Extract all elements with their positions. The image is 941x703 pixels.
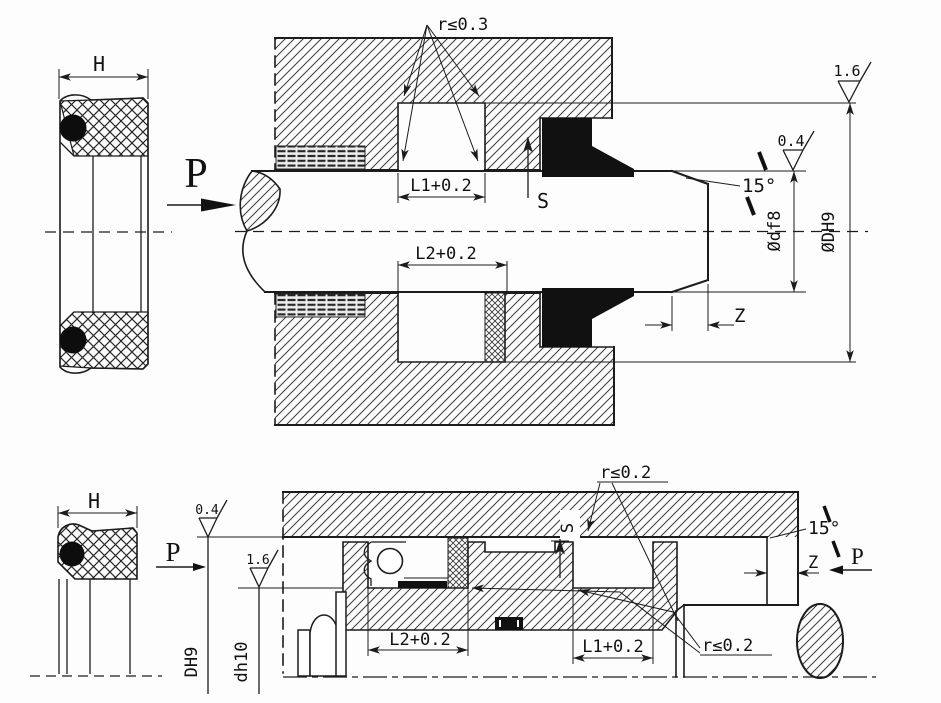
- label-l2-bottom: L2+0.2: [389, 630, 450, 650]
- piston-seal-figure: H P 0.4 DH9 1.6 dh10: [30, 463, 876, 694]
- label-z-bottom: Z: [808, 553, 818, 573]
- label-h-top: H: [93, 52, 105, 76]
- label-p-bottom-right: P: [851, 544, 864, 569]
- label-s-bottom: S: [558, 523, 578, 533]
- label-ra-bore-top: 1.6: [833, 62, 860, 80]
- piston-seal-section-view: H: [30, 489, 162, 676]
- pressure-arrowhead: [201, 199, 236, 212]
- rod-seal-section-view: H: [45, 52, 172, 373]
- label-p-bottom-left: P: [165, 537, 180, 567]
- label-ra-rod-top: 0.4: [777, 132, 804, 150]
- piston-nut: [310, 615, 338, 676]
- label-chamfer-angle-top: 15°: [742, 175, 776, 197]
- housing-upper: [275, 38, 634, 177]
- label-bore-dia: ØDH9: [819, 212, 839, 253]
- backup-ring-bottom: [448, 538, 468, 588]
- rod-broken-end: [240, 171, 280, 231]
- pressure-arrowhead-right: [829, 566, 843, 575]
- guide-strip-upper: [276, 146, 365, 169]
- backup-ring-section: [485, 293, 505, 362]
- label-l2-top: L2+0.2: [415, 244, 476, 264]
- pressure-indicator-bottom-left: P: [156, 537, 206, 571]
- label-radius-note-bottom-lower: r≤0.2: [702, 636, 753, 656]
- guide-strip-lower: [276, 294, 365, 317]
- housing-lower: [275, 288, 634, 425]
- label-s-top: S: [537, 189, 549, 213]
- label-radius-note-bottom-upper: r≤0.2: [600, 463, 651, 483]
- retainer-plate: [336, 592, 346, 676]
- o-ring-upper: [60, 115, 87, 142]
- label-l1-top: L1+0.2: [410, 176, 471, 196]
- rod-seal-figure: H P: [45, 15, 871, 425]
- energizer-o-ring-bottom: [378, 549, 403, 574]
- retainer-washer: [298, 630, 310, 676]
- label-ra-groove-bottom: 1.6: [246, 553, 269, 568]
- label-ra-bore-bottom: 0.4: [195, 503, 219, 518]
- label-l1-bottom: L1+0.2: [582, 637, 643, 657]
- o-ring-energizer: [60, 542, 85, 567]
- pressure-arrowhead-left: [193, 563, 206, 571]
- wiper-seal-upper: [542, 118, 634, 177]
- rod-broken-end-bottom: [797, 604, 843, 678]
- seal-installation-drawing: H P: [0, 0, 941, 703]
- label-bore-dia-bottom: DH9: [182, 647, 202, 678]
- label-z-top: Z: [734, 305, 745, 327]
- o-ring-lower: [60, 327, 87, 354]
- pressure-indicator-top: P: [167, 151, 236, 212]
- technical-drawing-svg: H P: [0, 0, 941, 703]
- label-h-bottom: H: [88, 489, 100, 513]
- seal-contact-band: [398, 581, 447, 588]
- cylinder-wall-hatch: [283, 492, 798, 537]
- label-p-top: P: [184, 151, 207, 197]
- label-chamfer-angle-bottom: 15°: [808, 518, 841, 539]
- label-radius-note-top: r≤0.3: [437, 15, 488, 35]
- label-groove-dia-bottom: dh10: [232, 642, 252, 683]
- label-rod-dia: Ødf8: [765, 211, 785, 252]
- wiper-seal-lower: [542, 288, 634, 347]
